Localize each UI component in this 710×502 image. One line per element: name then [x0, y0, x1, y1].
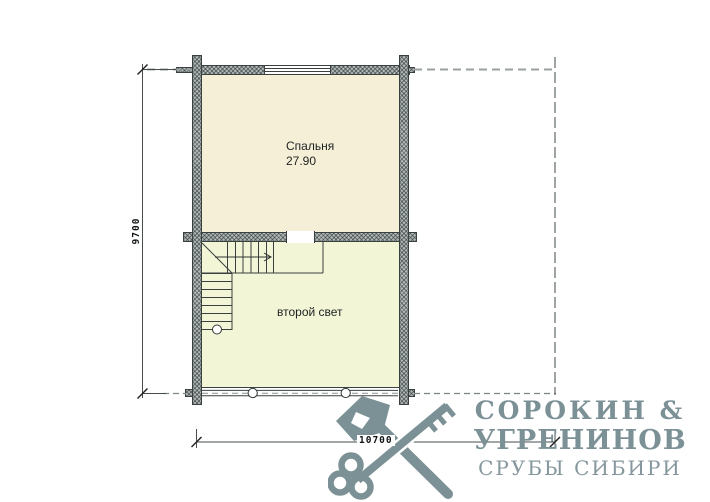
dimension-value-height: 9700 [131, 211, 143, 251]
floor-plan-drawing: Спальня 27.90 второй свет 9700 СОРОКИН [0, 0, 710, 502]
railing-post-left [248, 388, 257, 397]
logo-name-line2: УГРЕНИНОВ [455, 425, 705, 456]
dimension-tick [138, 65, 148, 75]
dimension-tick [138, 389, 148, 399]
logo-name-line1: СОРОКИН & [455, 396, 705, 425]
stair-treads-lower-run [202, 273, 232, 330]
bedroom-area: 27.90 [286, 154, 334, 169]
bedroom-label: Спальня 27.90 [286, 139, 334, 169]
window-symbol [264, 65, 331, 75]
second-light-label: второй свет [277, 305, 343, 320]
logo-tagline: СРУБЫ СИБИРИ [455, 456, 705, 481]
logo: СОРОКИН & УГРЕНИНОВ СРУБЫ СИБИРИ [455, 396, 705, 481]
dimension-tick [192, 437, 202, 447]
wall-right [399, 55, 409, 405]
wall-left [192, 55, 202, 405]
stair-treads-upper-run [227, 242, 274, 273]
log-end-top-left [176, 67, 193, 73]
log-end-bottom-left [185, 389, 193, 397]
dimension-value-width: 10700 [357, 435, 395, 446]
log-end-top-right [408, 67, 415, 73]
door-opening [286, 231, 315, 243]
bedroom-name: Спальня [286, 139, 334, 154]
